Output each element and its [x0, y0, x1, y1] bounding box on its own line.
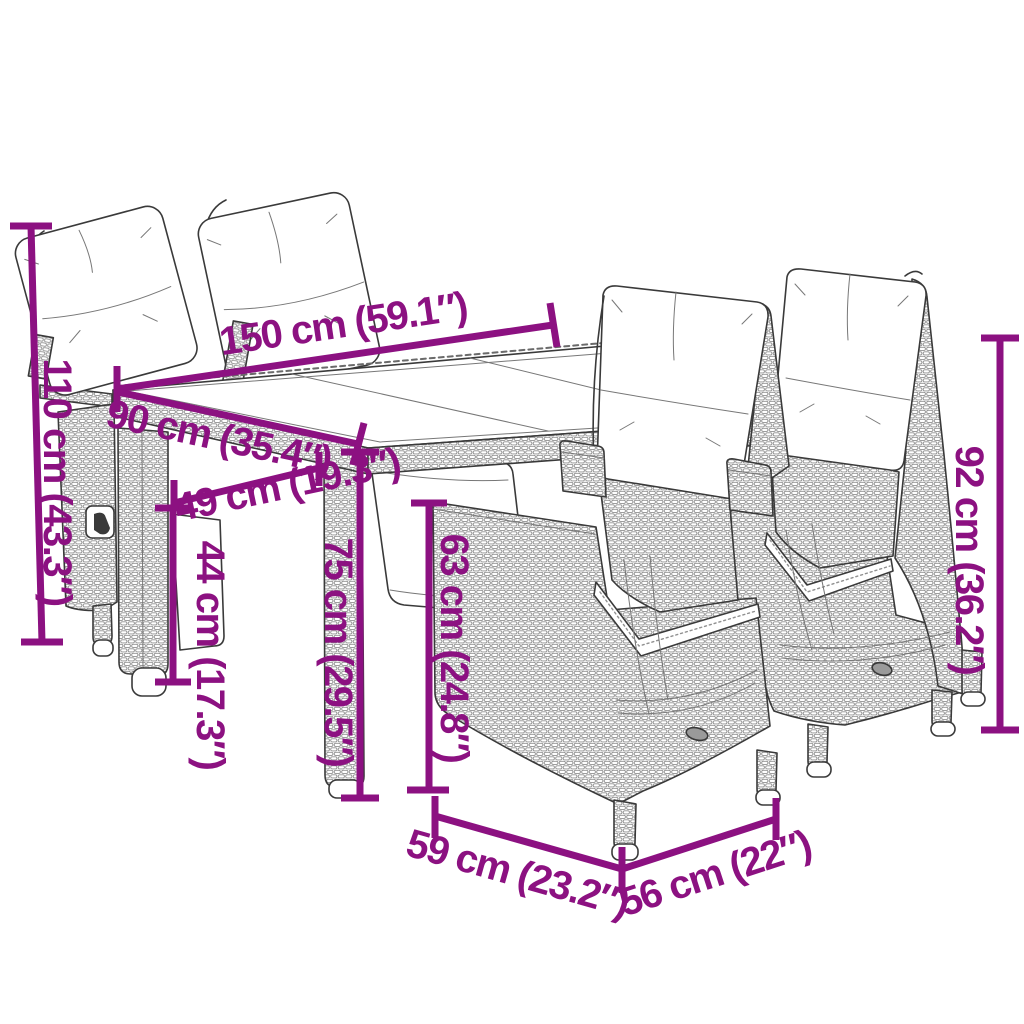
chair-right-armrest: [727, 459, 773, 516]
chair-foot: [93, 640, 113, 656]
armrest: [727, 459, 773, 516]
chair-foot: [931, 722, 955, 736]
back-cushion: [772, 269, 926, 470]
chair-foot: [807, 762, 831, 777]
dim-label-table-height: 75 cm (29.5″): [316, 538, 360, 767]
tick: [550, 303, 557, 347]
dim-label-front-chair-back-height: 92 cm (36.2″): [947, 446, 991, 675]
dim-label-back-chair-height: 110 cm (43.3″): [35, 358, 79, 605]
dim-label-side-panel-height: 63 cm (24.8″): [432, 534, 476, 763]
diagram-canvas: 150 cm (59.1″) 90 cm (35.4″) 110 cm (43.…: [0, 0, 1024, 1024]
frame-tip: [905, 271, 922, 276]
dim-label-seat-height: 44 cm (17.3″): [188, 541, 232, 770]
furniture-art: [12, 190, 985, 860]
armrest: [560, 441, 606, 497]
dimension-diagram: 150 cm (59.1″) 90 cm (35.4″) 110 cm (43.…: [0, 0, 1024, 1024]
chair-foot: [961, 692, 985, 706]
chair-leg: [93, 604, 112, 645]
